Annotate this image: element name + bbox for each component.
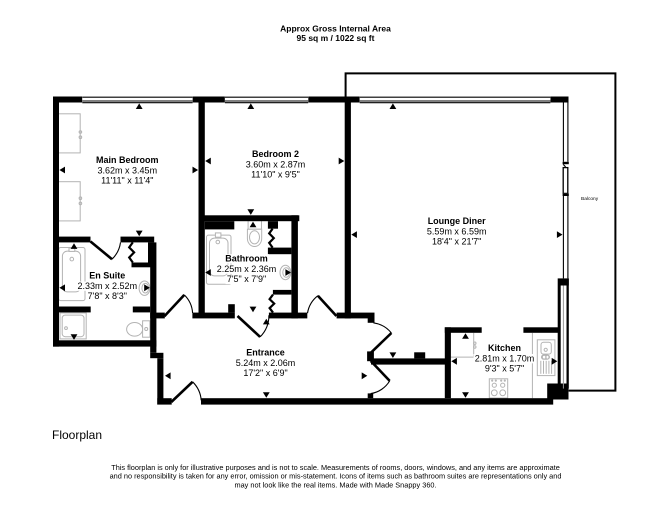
svg-text:7'5" x 7'9": 7'5" x 7'9" [227,274,266,284]
svg-text:95 sq m / 1022 sq ft: 95 sq m / 1022 sq ft [297,33,375,43]
svg-text:9'3" x 5'7": 9'3" x 5'7" [485,364,524,374]
svg-text:Floorplan: Floorplan [52,428,102,442]
svg-text:7'8" x 8'3": 7'8" x 8'3" [88,291,127,301]
svg-text:11'11" x 11'4": 11'11" x 11'4" [101,176,153,186]
svg-text:En Suite: En Suite [89,271,125,281]
svg-text:Entrance: Entrance [246,348,285,358]
svg-text:17'2" x 6'9": 17'2" x 6'9" [243,368,287,378]
svg-text:Lounge Diner: Lounge Diner [428,216,486,226]
svg-text:Approx Gross Internal Area: Approx Gross Internal Area [280,23,391,33]
svg-text:5.59m x 6.59m: 5.59m x 6.59m [427,226,487,236]
svg-text:3.60m x 2.87m: 3.60m x 2.87m [246,159,306,169]
svg-text:Bedroom 2: Bedroom 2 [252,149,299,159]
svg-text:3.62m x 3.45m: 3.62m x 3.45m [98,165,158,175]
svg-text:may not look like the real ite: may not look like the real items. Made w… [234,480,436,489]
svg-text:5.24m x 2.06m: 5.24m x 2.06m [236,358,296,368]
svg-text:Main Bedroom: Main Bedroom [96,155,159,165]
svg-text:11'10" x 9'5": 11'10" x 9'5" [251,170,300,180]
svg-text:2.81m x 1.70m: 2.81m x 1.70m [475,353,535,363]
svg-text:Balcony: Balcony [581,196,599,202]
svg-text:and no responsibility is taken: and no responsibility is taken for any e… [110,472,562,481]
svg-text:Bathroom: Bathroom [225,254,268,264]
svg-text:Kitchen: Kitchen [488,343,521,353]
svg-text:2.25m x 2.36m: 2.25m x 2.36m [217,264,277,274]
svg-text:18'4" x 21'7": 18'4" x 21'7" [432,237,481,247]
svg-text:2.33m x 2.52m: 2.33m x 2.52m [78,281,138,291]
